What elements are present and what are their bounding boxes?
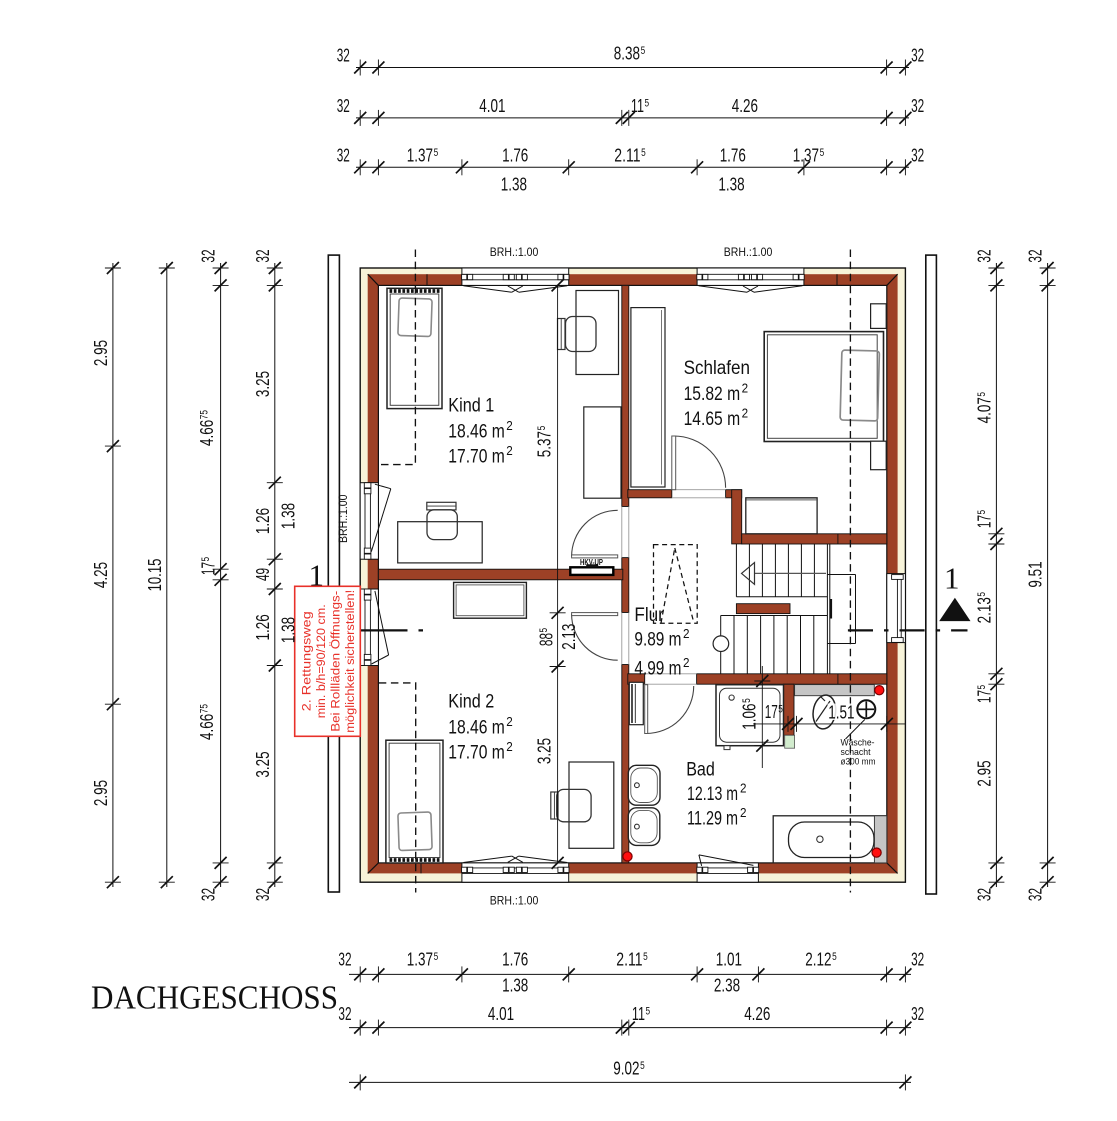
svg-text:2.95: 2.95 xyxy=(90,340,111,366)
svg-text:11: 11 xyxy=(632,1003,645,1024)
svg-text:75: 75 xyxy=(199,410,211,419)
svg-text:17.70 m: 17.70 m xyxy=(448,447,505,468)
svg-text:5: 5 xyxy=(976,592,988,597)
svg-text:2. Rettungsweg: 2. Rettungsweg xyxy=(299,611,313,711)
svg-text:Bei Rollläden Öffnungs-: Bei Rollläden Öffnungs- xyxy=(328,591,342,732)
svg-text:2: 2 xyxy=(506,418,513,433)
svg-text:12.13 m: 12.13 m xyxy=(687,784,738,805)
svg-text:75: 75 xyxy=(199,704,211,713)
svg-text:5: 5 xyxy=(200,557,212,562)
svg-text:5: 5 xyxy=(976,685,988,690)
svg-text:DACHGESCHOSS: DACHGESCHOSS xyxy=(91,980,338,1017)
svg-text:32: 32 xyxy=(198,888,219,901)
svg-text:1.38: 1.38 xyxy=(501,173,527,194)
svg-text:1.38: 1.38 xyxy=(278,617,299,643)
svg-text:5: 5 xyxy=(641,45,646,57)
svg-text:9.89 m: 9.89 m xyxy=(634,630,681,651)
svg-text:32: 32 xyxy=(338,949,351,970)
svg-text:1.37: 1.37 xyxy=(407,949,433,970)
svg-text:32: 32 xyxy=(198,250,219,263)
svg-text:18.46 m: 18.46 m xyxy=(448,422,505,443)
svg-text:3.25: 3.25 xyxy=(252,751,273,777)
svg-text:5: 5 xyxy=(832,951,837,963)
svg-text:32: 32 xyxy=(974,888,995,901)
svg-text:2.95: 2.95 xyxy=(90,780,111,806)
svg-text:5: 5 xyxy=(645,97,650,109)
svg-text:5: 5 xyxy=(646,1005,651,1017)
svg-text:17: 17 xyxy=(974,690,995,703)
svg-text:14.65 m: 14.65 m xyxy=(684,409,741,430)
svg-text:3.25: 3.25 xyxy=(252,371,273,397)
svg-text:10.15: 10.15 xyxy=(144,559,165,592)
svg-text:5: 5 xyxy=(538,628,550,633)
svg-text:1.26: 1.26 xyxy=(252,614,273,640)
svg-text:32: 32 xyxy=(911,1003,924,1024)
svg-text:4.99 m: 4.99 m xyxy=(634,659,681,680)
svg-text:1.51: 1.51 xyxy=(828,702,854,723)
svg-text:8.38: 8.38 xyxy=(614,43,640,64)
svg-text:17: 17 xyxy=(765,701,778,722)
svg-text:32: 32 xyxy=(1025,250,1046,263)
svg-text:2.95: 2.95 xyxy=(974,760,995,786)
svg-text:32: 32 xyxy=(337,45,350,66)
svg-text:5: 5 xyxy=(641,147,646,159)
svg-text:18.46 m: 18.46 m xyxy=(448,718,505,739)
svg-text:2: 2 xyxy=(740,805,747,820)
svg-text:32: 32 xyxy=(337,95,350,116)
svg-text:2: 2 xyxy=(742,381,749,396)
svg-text:32: 32 xyxy=(252,250,273,263)
svg-text:ø300 mm: ø300 mm xyxy=(841,757,876,768)
svg-text:1.06: 1.06 xyxy=(739,704,760,730)
svg-text:Kind 1: Kind 1 xyxy=(448,396,494,417)
svg-text:9.02: 9.02 xyxy=(613,1057,639,1078)
svg-text:2: 2 xyxy=(740,781,747,796)
svg-text:2: 2 xyxy=(506,714,513,729)
svg-text:BRH.:1.00: BRH.:1.00 xyxy=(724,245,773,259)
svg-text:2.11: 2.11 xyxy=(616,949,642,970)
svg-text:2.13: 2.13 xyxy=(558,624,579,650)
svg-text:BRH.:1.00: BRH.:1.00 xyxy=(490,245,539,259)
svg-text:1.01: 1.01 xyxy=(716,949,742,970)
svg-text:32: 32 xyxy=(911,949,924,970)
svg-text:15.82 m: 15.82 m xyxy=(684,384,741,405)
svg-text:Schlafen: Schlafen xyxy=(684,358,750,379)
svg-text:5: 5 xyxy=(643,951,648,963)
svg-text:5.37: 5.37 xyxy=(534,431,555,457)
svg-text:1.38: 1.38 xyxy=(502,975,528,996)
svg-text:2.11: 2.11 xyxy=(614,144,640,165)
svg-text:49: 49 xyxy=(252,568,273,581)
svg-text:Bad: Bad xyxy=(686,760,715,781)
svg-text:1.76: 1.76 xyxy=(502,144,528,165)
svg-text:1: 1 xyxy=(944,561,960,596)
svg-text:9.51: 9.51 xyxy=(1025,561,1046,587)
svg-text:32: 32 xyxy=(911,95,924,116)
svg-text:5: 5 xyxy=(536,426,548,431)
svg-text:HKV-UP: HKV-UP xyxy=(580,558,603,567)
svg-text:4.07: 4.07 xyxy=(974,397,995,423)
svg-text:32: 32 xyxy=(337,144,350,165)
svg-text:Kind 2: Kind 2 xyxy=(448,692,494,713)
svg-text:5: 5 xyxy=(778,704,783,716)
svg-text:2.38: 2.38 xyxy=(714,975,740,996)
svg-text:4.01: 4.01 xyxy=(488,1003,514,1024)
svg-text:5: 5 xyxy=(640,1060,645,1072)
svg-text:32: 32 xyxy=(974,250,995,263)
svg-text:1.38: 1.38 xyxy=(278,503,299,529)
svg-text:32: 32 xyxy=(1025,888,1046,901)
svg-text:Flur: Flur xyxy=(634,605,664,626)
svg-text:2: 2 xyxy=(506,739,513,754)
svg-text:32: 32 xyxy=(338,1003,351,1024)
svg-text:1.37: 1.37 xyxy=(407,144,433,165)
svg-text:2: 2 xyxy=(683,655,690,670)
svg-text:2.12: 2.12 xyxy=(805,949,831,970)
svg-text:4.66: 4.66 xyxy=(196,714,217,740)
svg-text:BRH.:1.00: BRH.:1.00 xyxy=(490,894,539,908)
svg-text:4.25: 4.25 xyxy=(90,562,111,588)
svg-text:4.26: 4.26 xyxy=(744,1003,770,1024)
svg-text:17.70 m: 17.70 m xyxy=(448,743,505,764)
svg-text:4.01: 4.01 xyxy=(479,95,505,116)
svg-text:5: 5 xyxy=(741,698,753,703)
svg-text:2: 2 xyxy=(742,406,749,421)
svg-text:3.25: 3.25 xyxy=(534,738,555,764)
svg-text:11: 11 xyxy=(631,95,644,116)
svg-text:11.29 m: 11.29 m xyxy=(687,809,738,830)
svg-text:5: 5 xyxy=(434,147,439,159)
svg-text:BRH.:1.00: BRH.:1.00 xyxy=(336,494,350,543)
svg-text:1.26: 1.26 xyxy=(252,508,273,534)
svg-text:2: 2 xyxy=(683,626,690,641)
svg-text:32: 32 xyxy=(252,888,273,901)
svg-text:möglichkeit sicherstellen!: möglichkeit sicherstellen! xyxy=(343,590,357,733)
svg-text:32: 32 xyxy=(911,45,924,66)
svg-text:17: 17 xyxy=(974,515,995,528)
svg-text:1.76: 1.76 xyxy=(502,949,528,970)
svg-text:2.13: 2.13 xyxy=(974,597,995,623)
svg-text:5: 5 xyxy=(820,147,825,159)
svg-text:1.38: 1.38 xyxy=(718,173,744,194)
svg-text:88: 88 xyxy=(536,633,557,646)
svg-text:2: 2 xyxy=(506,443,513,458)
svg-text:1.37: 1.37 xyxy=(793,144,819,165)
svg-text:5: 5 xyxy=(434,951,439,963)
svg-text:1.76: 1.76 xyxy=(720,144,746,165)
svg-text:5: 5 xyxy=(976,392,988,397)
svg-text:4.66: 4.66 xyxy=(196,420,217,446)
svg-text:5: 5 xyxy=(976,510,988,515)
svg-text:17: 17 xyxy=(198,562,219,575)
svg-text:32: 32 xyxy=(911,144,924,165)
svg-text:min. b/h=90/120 cm.: min. b/h=90/120 cm. xyxy=(314,604,328,718)
svg-text:4.26: 4.26 xyxy=(732,95,758,116)
